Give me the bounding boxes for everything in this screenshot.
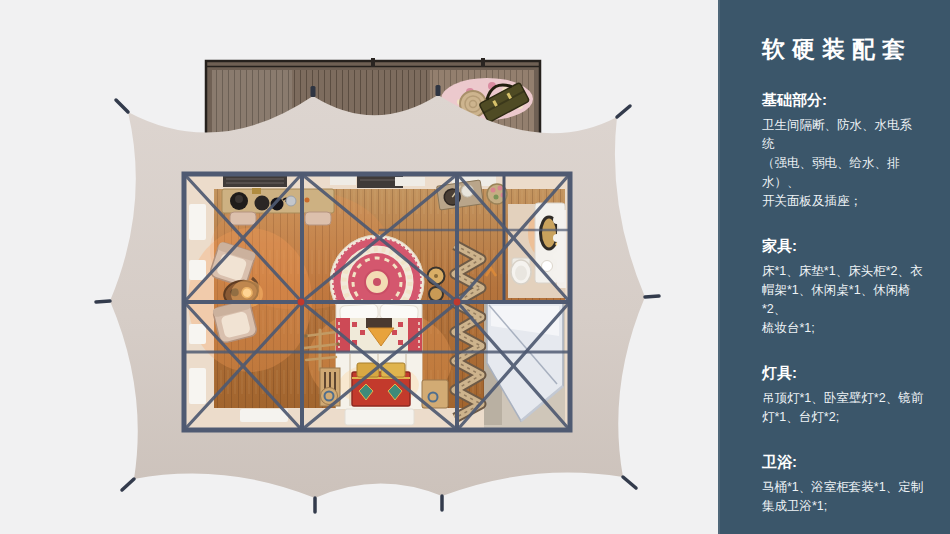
section-lighting: 灯具: 吊顶灯*1、卧室壁灯*2、镜前 灯*1、台灯*2; (762, 364, 924, 427)
sidebar-title: 软硬装配套 (750, 34, 924, 65)
section-bathroom-heading: 卫浴: (762, 453, 924, 472)
deck-joint-clip (371, 58, 375, 67)
floorplan-render (0, 0, 718, 534)
spec-sidebar: 软硬装配套 基础部分: 卫生间隔断、防水、水电系统 （强电、弱电、给水、排水）、… (718, 0, 950, 534)
fabric-clip (311, 86, 316, 97)
section-furniture: 家具: 床*1、床垫*1、床头柜*2、衣 帽架*1、休闲桌*1、休闲椅*2、 梳… (762, 237, 924, 338)
section-furniture-heading: 家具: (762, 237, 924, 256)
stool (305, 212, 331, 225)
deck-joint-clip (481, 58, 485, 67)
section-lighting-body: 吊顶灯*1、卧室壁灯*2、镜前 灯*1、台灯*2; (762, 389, 924, 427)
slide: 软硬装配套 基础部分: 卫生间隔断、防水、水电系统 （强电、弱电、给水、排水）、… (0, 0, 950, 534)
fabric-clip (436, 85, 441, 96)
section-basics-heading: 基础部分: (762, 91, 924, 110)
section-furniture-body: 床*1、床垫*1、床头柜*2、衣 帽架*1、休闲桌*1、休闲椅*2、 梳妆台*1… (762, 262, 924, 338)
section-bathroom: 卫浴: 马桶*1、浴室柜套装*1、定制 集成卫浴*1; (762, 453, 924, 516)
frame-hub (454, 299, 461, 306)
section-bathroom-body: 马桶*1、浴室柜套装*1、定制 集成卫浴*1; (762, 478, 924, 516)
section-lighting-heading: 灯具: (762, 364, 924, 383)
section-basics-body: 卫生间隔断、防水、水电系统 （强电、弱电、给水、排水）、 开关面板及插座； (762, 116, 924, 211)
bed-mat (345, 409, 414, 425)
patterned-quilt (336, 318, 422, 352)
floor-mat (240, 409, 288, 422)
section-basics: 基础部分: 卫生间隔断、防水、水电系统 （强电、弱电、给水、排水）、 开关面板及… (762, 91, 924, 211)
stool (230, 212, 256, 225)
frame-hub (298, 299, 305, 306)
toilet (511, 258, 531, 284)
